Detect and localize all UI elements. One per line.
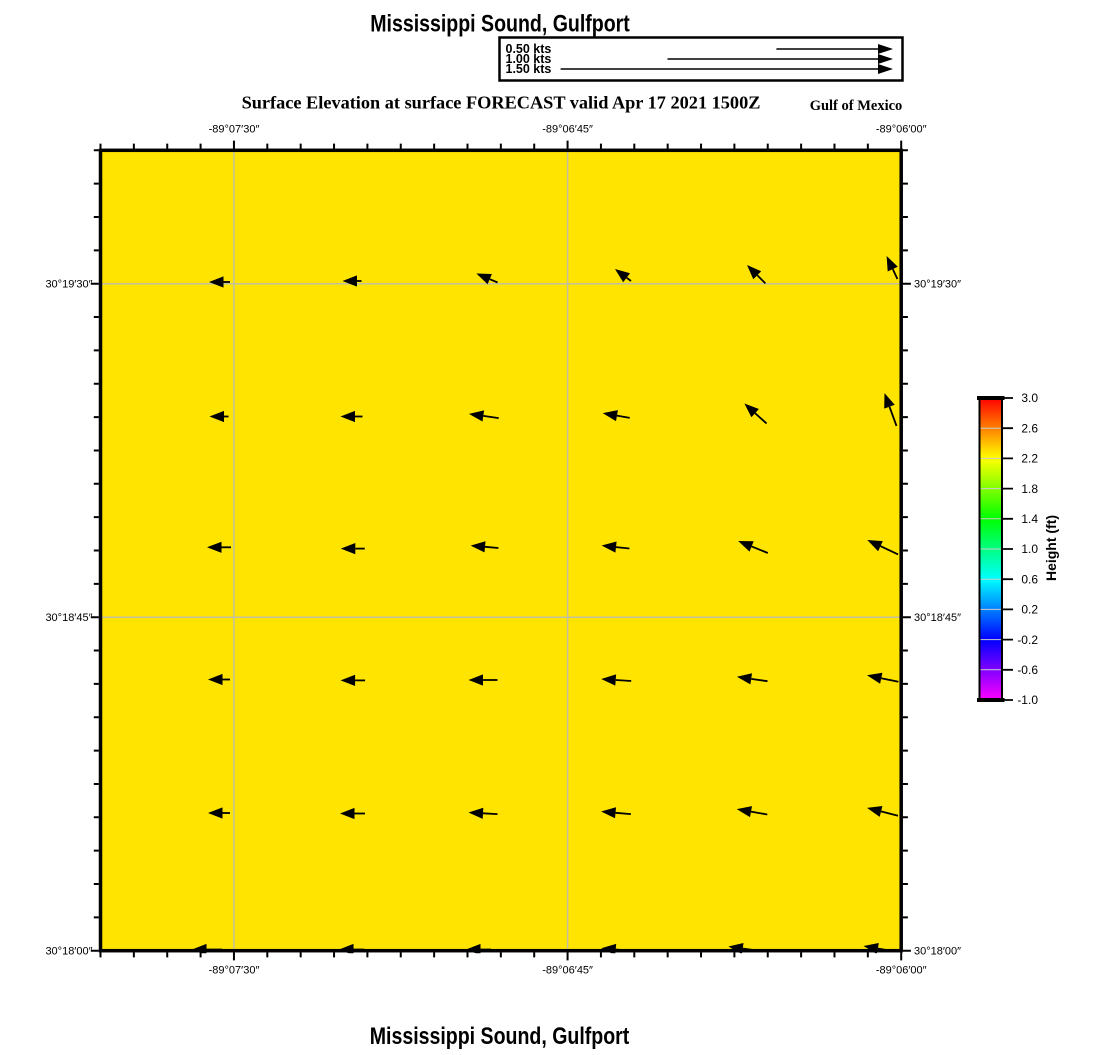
svg-text:30°18′45″: 30°18′45″: [914, 612, 961, 624]
svg-text:2.2: 2.2: [1021, 452, 1038, 466]
svg-text:Gulf of Mexico: Gulf of Mexico: [810, 98, 903, 114]
svg-text:-89°07′30″: -89°07′30″: [209, 965, 260, 977]
svg-text:Height (ft): Height (ft): [1043, 515, 1059, 581]
svg-text:30°18′45″: 30°18′45″: [45, 612, 92, 624]
svg-text:30°18′00″: 30°18′00″: [45, 946, 92, 958]
svg-text:Mississippi Sound, Gulfport: Mississippi Sound, Gulfport: [370, 1022, 630, 1049]
svg-text:-89°07′30″: -89°07′30″: [209, 124, 260, 136]
svg-text:-89°06′45″: -89°06′45″: [542, 124, 593, 136]
svg-text:-89°06′45″: -89°06′45″: [542, 965, 593, 977]
svg-text:-0.2: -0.2: [1017, 633, 1038, 647]
svg-text:-89°06′00″: -89°06′00″: [876, 124, 927, 136]
svg-text:Mississippi Sound, Gulfport: Mississippi Sound, Gulfport: [370, 10, 630, 37]
svg-text:1.0: 1.0: [1021, 542, 1038, 556]
svg-text:30°18′00″: 30°18′00″: [914, 946, 961, 958]
svg-text:-89°06′00″: -89°06′00″: [876, 965, 927, 977]
svg-text:1.8: 1.8: [1021, 482, 1038, 496]
svg-text:0.2: 0.2: [1021, 603, 1038, 617]
svg-text:0.6: 0.6: [1021, 572, 1038, 586]
svg-text:-0.6: -0.6: [1017, 663, 1038, 677]
svg-text:3.0: 3.0: [1021, 391, 1038, 405]
svg-text:1.4: 1.4: [1021, 512, 1038, 526]
svg-text:-1.0: -1.0: [1017, 693, 1038, 707]
svg-text:30°19′30″: 30°19′30″: [45, 279, 92, 291]
svg-text:30°19′30″: 30°19′30″: [914, 279, 961, 291]
svg-text:Surface Elevation at surface F: Surface Elevation at surface FORECAST va…: [242, 93, 761, 113]
svg-text:2.6: 2.6: [1021, 421, 1038, 435]
svg-text:1.50 kts: 1.50 kts: [506, 62, 552, 76]
